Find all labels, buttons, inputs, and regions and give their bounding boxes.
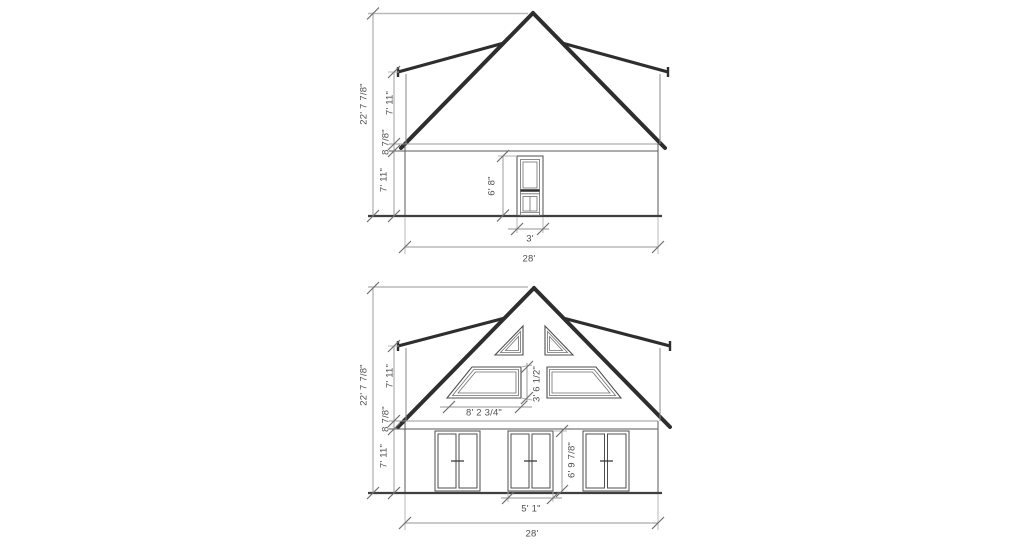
rear-elevation: 22' 7 7/8" 7' 11" 8 7/8" 7' 11" 6' 8" 3'…	[359, 8, 669, 265]
trapezoid-window-left-inner2	[458, 372, 516, 393]
rear-dimensions: 22' 7 7/8" 7' 11" 8 7/8" 7' 11" 6' 8" 3'…	[359, 8, 665, 265]
front-elevation: 22' 7 7/8" 7' 11" 8 7/8" 7' 11" 3' 6 1/2…	[359, 282, 671, 540]
rear-entry-door	[517, 156, 543, 216]
dim-label-upper-wall: 7' 11"	[385, 364, 396, 388]
triangle-window-right-inner2	[550, 337, 563, 351]
dim-label-door-height: 6' 9 7/8"	[567, 442, 578, 478]
dim-label-lower-wall: 7' 11"	[379, 168, 390, 192]
rake-left	[398, 288, 534, 427]
dim-label-overall-height: 22' 7 7/8"	[359, 364, 370, 406]
dim-label-door-height: 6' 8"	[487, 176, 498, 195]
front-dimensions: 22' 7 7/8" 7' 11" 8 7/8" 7' 11" 3' 6 1/2…	[359, 282, 665, 540]
rake-right	[533, 13, 665, 148]
dim-label-eave-band: 8 7/8"	[381, 406, 392, 432]
triangle-window-left-inner2	[506, 337, 519, 351]
french-door-center	[508, 431, 553, 491]
trapezoid-window-right-inner2	[552, 372, 610, 393]
rear-walls	[368, 144, 662, 216]
french-door-left	[435, 431, 480, 491]
triangle-window-right-inner	[548, 332, 568, 353]
dim-label-overall-height: 22' 7 7/8"	[359, 83, 370, 125]
elevation-drawing: 22' 7 7/8" 7' 11" 8 7/8" 7' 11" 6' 8" 3'…	[0, 0, 1024, 554]
french-doors	[435, 431, 629, 491]
dim-label-door-width: 5' 1"	[521, 504, 540, 515]
triangle-window-left-inner	[501, 332, 521, 353]
rake-right	[534, 288, 670, 427]
dim-label-window-width: 8' 2 3/4"	[466, 408, 502, 419]
dim-label-eave-band: 8 7/8"	[381, 129, 392, 155]
door-glass	[523, 162, 537, 188]
front-walls	[368, 421, 662, 493]
trapezoid-window-right-inner	[550, 370, 616, 396]
dim-label-overall-width: 28'	[523, 254, 536, 265]
dim-label-overall-width: 28'	[526, 529, 539, 540]
front-roof	[368, 287, 670, 427]
rear-roof	[368, 13, 668, 148]
trapezoid-window-left-inner	[453, 370, 519, 396]
elevation-drawing-canvas: 22' 7 7/8" 7' 11" 8 7/8" 7' 11" 6' 8" 3'…	[0, 0, 1024, 554]
dim-label-upper-wall: 7' 11"	[385, 91, 396, 115]
dim-label-door-width: 3'	[526, 234, 534, 245]
dim-label-window-height: 3' 6 1/2"	[532, 366, 543, 402]
french-door-right	[583, 431, 629, 491]
rake-left	[401, 13, 533, 148]
dim-label-lower-wall: 7' 11"	[379, 444, 390, 468]
